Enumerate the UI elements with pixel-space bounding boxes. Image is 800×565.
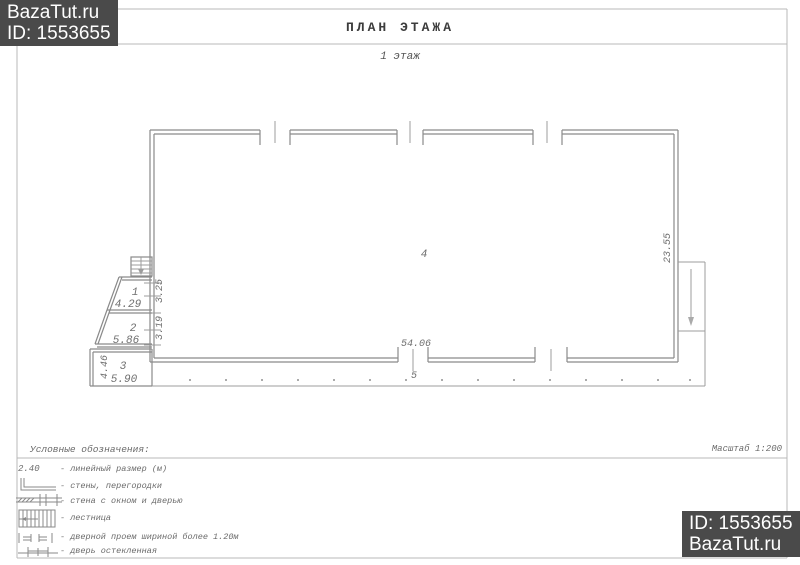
floor-plan-page: 1 4.29 3.25 2 5.86 3.19 3 5.90 4.46 4 54… xyxy=(0,0,800,565)
terrace-dots xyxy=(189,379,691,381)
scale-label: Масштаб 1:200 xyxy=(712,444,782,454)
room-1-width: 4.29 xyxy=(115,299,142,311)
plan-labels: 1 4.29 3.25 2 5.86 3.19 3 5.90 4.46 4 54… xyxy=(100,233,674,386)
total-width-dim: 54.06 xyxy=(401,339,431,350)
room-1-number: 1 xyxy=(132,287,139,299)
watermark-site: BazaTut.ru xyxy=(7,2,118,23)
entrance-porch xyxy=(678,262,705,331)
room-3-width: 5.90 xyxy=(111,374,138,386)
watermark-top-left: BazaTut.ru ID: 1553655 xyxy=(0,0,118,46)
stairs-arrow-icon xyxy=(138,269,144,275)
hall-number: 4 xyxy=(421,249,428,261)
porch-number: 5 xyxy=(411,371,417,382)
room-3-depth: 4.46 xyxy=(100,355,111,379)
stairs-icon xyxy=(18,509,56,528)
legend-window-door-label: - стена с окном и дверью xyxy=(60,496,182,506)
legend-walls-label: - стены, перегородки xyxy=(60,481,162,491)
sheet-frame xyxy=(17,9,787,558)
watermark-site: BazaTut.ru xyxy=(689,534,800,555)
walls-partitions-icon xyxy=(18,477,58,493)
glazed-door-icon xyxy=(18,545,58,559)
watermark-bottom-right: ID: 1553655 BazaTut.ru xyxy=(682,511,800,557)
page-title: ПЛАН ЭТАЖА xyxy=(0,20,800,35)
room-2-number: 2 xyxy=(130,323,137,335)
main-hall-walls xyxy=(144,121,678,371)
door-opening-icon xyxy=(16,531,58,545)
total-depth-dim: 23.55 xyxy=(663,233,674,263)
ramp-arrow-icon xyxy=(688,317,694,326)
legend-stairs-label: - лестница xyxy=(60,513,111,523)
room-2-width: 5.86 xyxy=(113,335,140,347)
legend-door-opening-label: - дверной проем шириной более 1.20м xyxy=(60,532,239,542)
room-2-depth: 3.19 xyxy=(155,316,166,340)
legend-dimension-label: - линейный размер (м) xyxy=(60,464,167,474)
wall-window-door-icon xyxy=(16,494,62,508)
watermark-id: ID: 1553655 xyxy=(689,513,800,534)
watermark-id: ID: 1553655 xyxy=(7,23,118,44)
legend-dimension-sample: 2.40 xyxy=(18,464,40,474)
stairs xyxy=(131,257,152,276)
room-1-depth: 3.25 xyxy=(155,279,166,303)
legend-glazed-door-label: - дверь остекленная xyxy=(60,546,157,556)
room-3-number: 3 xyxy=(120,361,127,373)
floor-label: 1 этаж xyxy=(0,51,800,63)
legend-heading: Условные обозначения: xyxy=(30,444,150,455)
